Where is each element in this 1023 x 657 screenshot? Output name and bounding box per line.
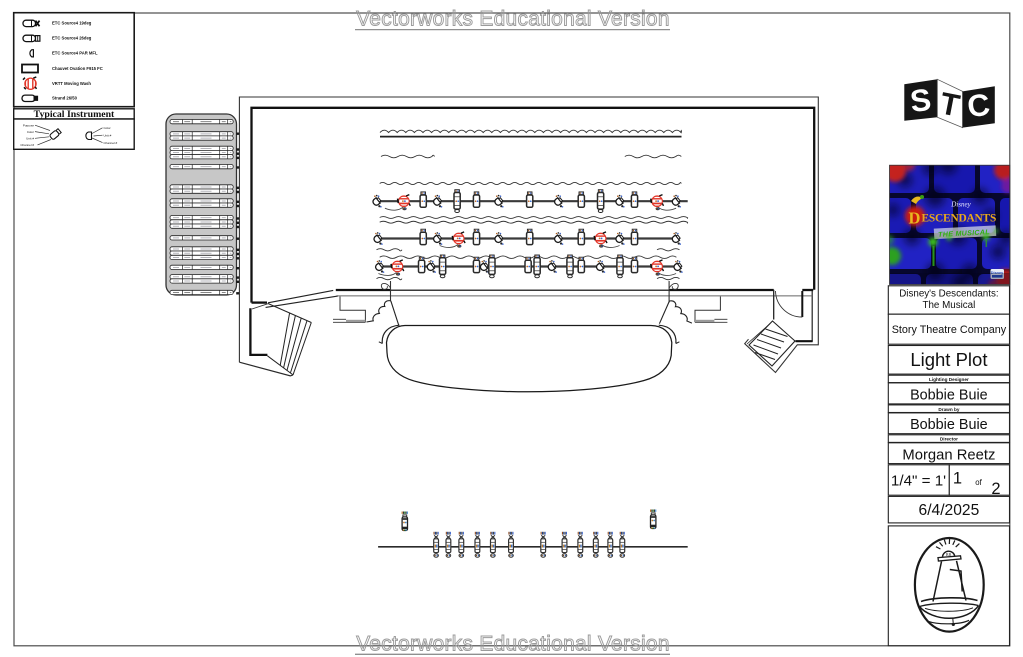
svg-text:Typical Instrument: Typical Instrument — [34, 109, 115, 120]
svg-text:ETC Source4 19deg: ETC Source4 19deg — [52, 21, 92, 26]
svg-text:Morgan Reetz: Morgan Reetz — [902, 447, 995, 463]
svg-text:S: S — [908, 82, 933, 119]
svg-text:Unit #: Unit # — [26, 137, 34, 141]
svg-text:Purpose: Purpose — [23, 124, 35, 128]
svg-text:Vectorworks Educational Versio: Vectorworks Educational Version — [356, 633, 670, 656]
svg-text:of: of — [975, 478, 982, 487]
svg-text:Disney: Disney — [950, 201, 971, 209]
svg-text:D: D — [909, 209, 921, 228]
svg-text:ESCENDANTS: ESCENDANTS — [922, 213, 997, 225]
svg-text:Unit #: Unit # — [104, 134, 112, 138]
svg-text:Vectorworks Educational Versio: Vectorworks Educational Version — [356, 8, 670, 31]
svg-text:Bobbie Buie: Bobbie Buie — [910, 387, 988, 403]
svg-text:Color: Color — [27, 130, 34, 134]
svg-text:Channel #: Channel # — [104, 141, 118, 145]
svg-text:Color: Color — [104, 126, 111, 130]
svg-text:Director: Director — [940, 437, 958, 442]
svg-text:ETC Source4 26deg: ETC Source4 26deg — [52, 36, 92, 41]
svg-text:ETC Source4 PAR MFL: ETC Source4 PAR MFL — [52, 51, 98, 56]
svg-text:Channel #: Channel # — [20, 143, 34, 147]
svg-text:VRTT Moving Wash: VRTT Moving Wash — [52, 81, 91, 86]
svg-text:Story Theatre Company: Story Theatre Company — [892, 324, 1007, 336]
svg-text:Disney's Descendants:: Disney's Descendants: — [899, 289, 998, 300]
svg-text:Strand 26/50: Strand 26/50 — [52, 96, 78, 101]
svg-text:2: 2 — [991, 480, 1000, 498]
svg-text:Light Plot: Light Plot — [910, 349, 987, 370]
svg-text:C: C — [965, 87, 991, 124]
svg-text:1: 1 — [953, 470, 962, 488]
svg-text:Lighting Designer: Lighting Designer — [929, 377, 969, 382]
svg-text:Chauvet Ovation F915 FC: Chauvet Ovation F915 FC — [52, 66, 103, 71]
svg-text:1/4" = 1': 1/4" = 1' — [891, 472, 946, 489]
svg-text:Bobbie Buie: Bobbie Buie — [910, 417, 988, 433]
svg-text:Drawn by: Drawn by — [938, 407, 959, 412]
svg-text:The Musical: The Musical — [922, 300, 975, 311]
svg-text:6/4/2025: 6/4/2025 — [919, 502, 980, 519]
